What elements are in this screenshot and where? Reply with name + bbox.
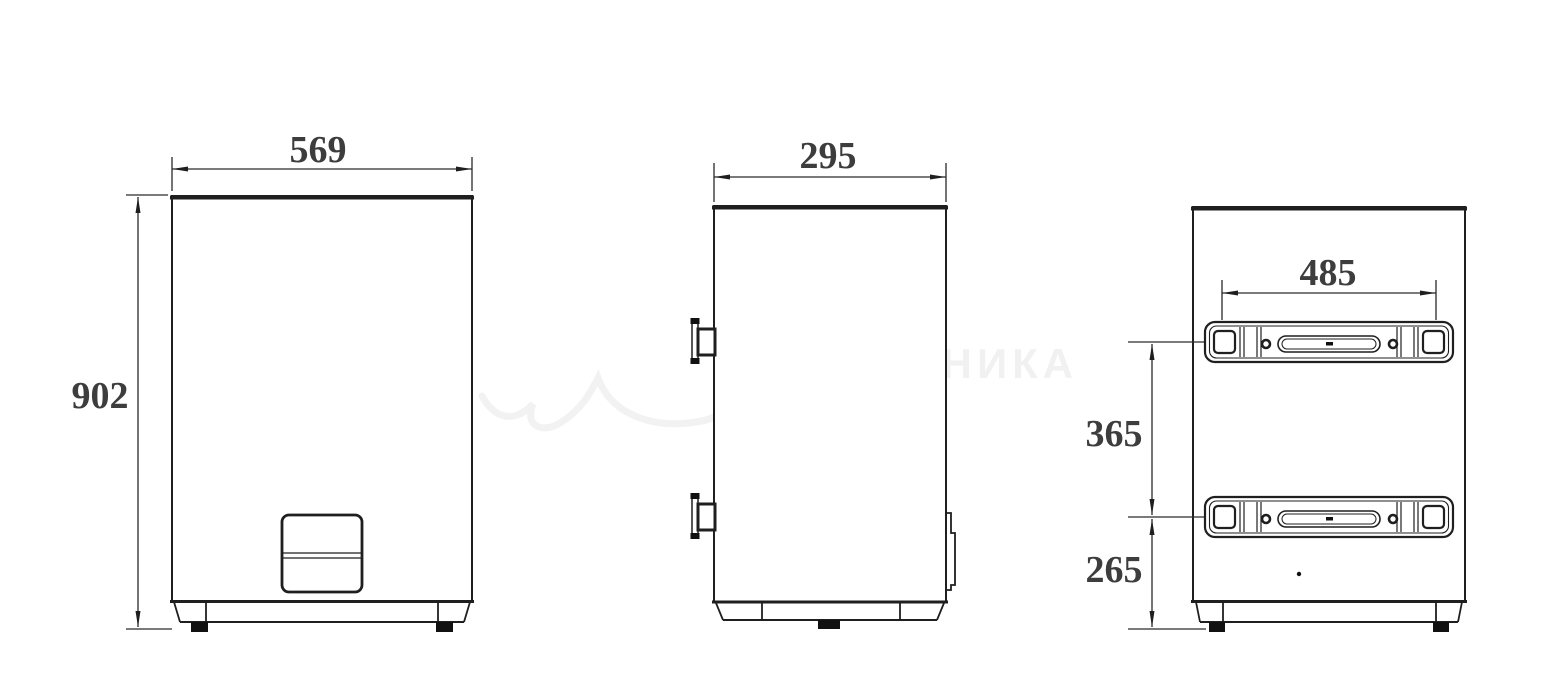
dimension-label-bracket-width: 485 — [1300, 254, 1357, 292]
dimension-label-front-width: 569 — [290, 131, 347, 169]
side-body — [714, 206, 946, 602]
dimension-label-bracket-spacing: 365 — [1086, 415, 1143, 453]
back-left-foot — [1209, 622, 1225, 632]
front-right-foot — [436, 622, 453, 632]
dimension-label-bottom-offset: 265 — [1086, 551, 1143, 589]
front-view — [170, 196, 474, 632]
watermark-swoosh-curve — [482, 378, 727, 428]
dimension-label-front-height: 902 — [72, 377, 129, 415]
front-base-plinth — [170, 602, 474, 623]
side-foot — [818, 620, 840, 629]
back-base-plinth — [1191, 602, 1467, 623]
side-upper-pipe-fitting — [691, 318, 716, 364]
front-left-foot — [191, 622, 208, 632]
dimension-label-side-depth: 295 — [800, 137, 857, 175]
side-base-plinth — [712, 602, 948, 620]
side-mounting-bracket-profile — [946, 513, 955, 590]
technical-drawing-canvas: САНТЕХНИКА ОНЛАЙН — [0, 0, 1552, 698]
front-height-dimension — [126, 195, 172, 629]
back-right-foot — [1433, 622, 1449, 632]
side-lower-pipe-fitting — [691, 493, 716, 539]
side-view — [691, 206, 956, 629]
front-control-panel — [282, 515, 362, 592]
back-drain-point — [1297, 572, 1301, 576]
drawing-linework — [0, 0, 1552, 698]
